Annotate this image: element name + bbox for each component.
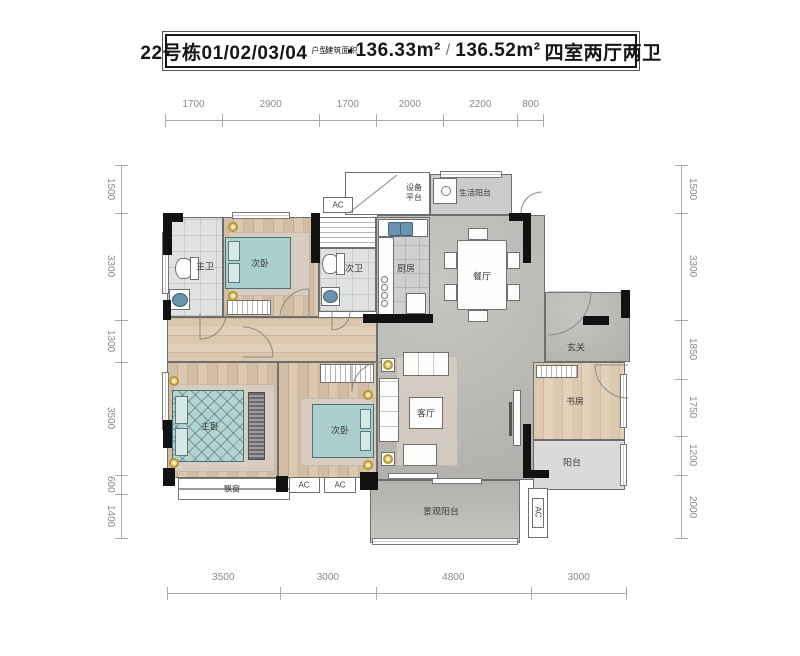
label-balcony: 阳台 <box>563 456 581 469</box>
door-arc <box>521 192 542 213</box>
door-arc <box>352 362 382 392</box>
label-bedroom2: 次卧 <box>251 257 269 270</box>
label-dining: 餐厅 <box>473 270 491 283</box>
door-arc <box>332 312 350 330</box>
label-ac-top: AC <box>332 201 343 210</box>
label-view-balcony: 景观阳台 <box>423 505 459 518</box>
label-kitchen: 厨房 <box>397 262 415 275</box>
label-life-balcony: 生活阳台 <box>459 188 491 199</box>
label-ac-2: AC <box>334 481 345 490</box>
label-master-bedroom: 主卧 <box>201 420 219 433</box>
label-master-bath: 主卫 <box>196 260 214 273</box>
label-ac-1: AC <box>298 481 309 490</box>
door-arc-overlay <box>0 0 800 656</box>
door-arc <box>595 365 628 398</box>
label-bay-window: 飘窗 <box>224 484 240 495</box>
label-ac-vertical-text: AC <box>534 506 543 517</box>
door-arc <box>243 327 273 357</box>
label-ac-vertical: AC <box>534 506 543 519</box>
door-arc <box>280 289 309 318</box>
label-bedroom3: 次卧 <box>331 424 349 437</box>
label-bath2: 次卫 <box>345 262 363 275</box>
floorplan-page: 22号栋01/02/03/04 户型 建筑面积 ● 136.33m² / 136… <box>0 0 800 656</box>
label-equip-platform: 设备平台 <box>405 183 423 203</box>
equip-divider-line <box>350 175 397 212</box>
label-study: 书房 <box>566 395 584 408</box>
label-foyer: 玄关 <box>567 341 585 354</box>
door-arc <box>548 292 591 335</box>
door-arc <box>200 313 226 339</box>
label-living: 客厅 <box>417 407 435 420</box>
